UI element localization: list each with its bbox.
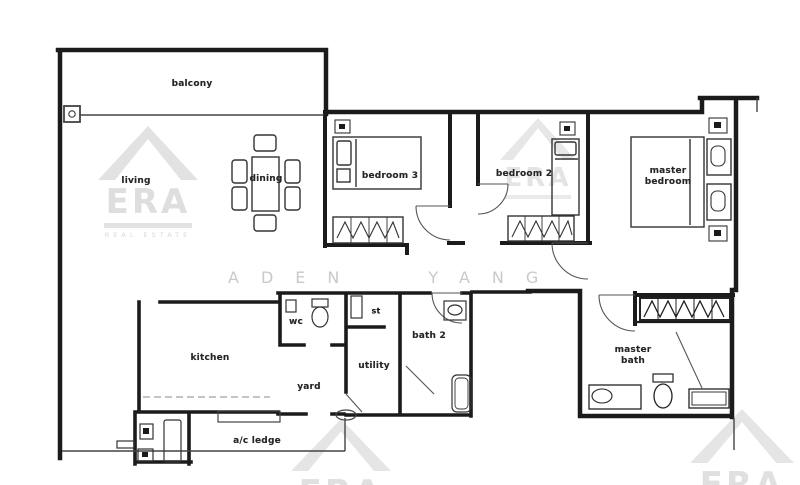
room-label-yard: yard: [297, 382, 321, 392]
room-label-dining: dining: [249, 174, 282, 184]
bedroom3-furniture: [333, 120, 421, 243]
floor-plan-page: ERA REAL ESTATE ERA ERA ERA ADEN YANG: [0, 0, 800, 485]
room-label-wc: wc: [289, 317, 303, 327]
room-label-living: living: [121, 176, 150, 186]
room-label-bedroom3: bedroom 3: [362, 171, 418, 181]
room-label-store: st: [372, 307, 381, 316]
room-label-ac-ledge: a/c ledge: [233, 436, 281, 446]
room-label-utility: utility: [358, 361, 390, 371]
room-label-bedroom2: bedroom 2: [496, 169, 552, 179]
agent-name-watermark: ADEN YANG: [228, 268, 560, 287]
floor-plan-linework: [0, 0, 800, 485]
room-label-bath2: bath 2: [412, 331, 446, 341]
bedroom2-furniture: [508, 122, 579, 241]
room-label-master-bedroom: master bedroom: [642, 166, 694, 189]
room-label-kitchen: kitchen: [190, 353, 229, 363]
room-label-balcony: balcony: [172, 79, 213, 89]
bedroom-walls: [325, 112, 590, 253]
room-label-master-bath: master bath: [611, 345, 655, 368]
